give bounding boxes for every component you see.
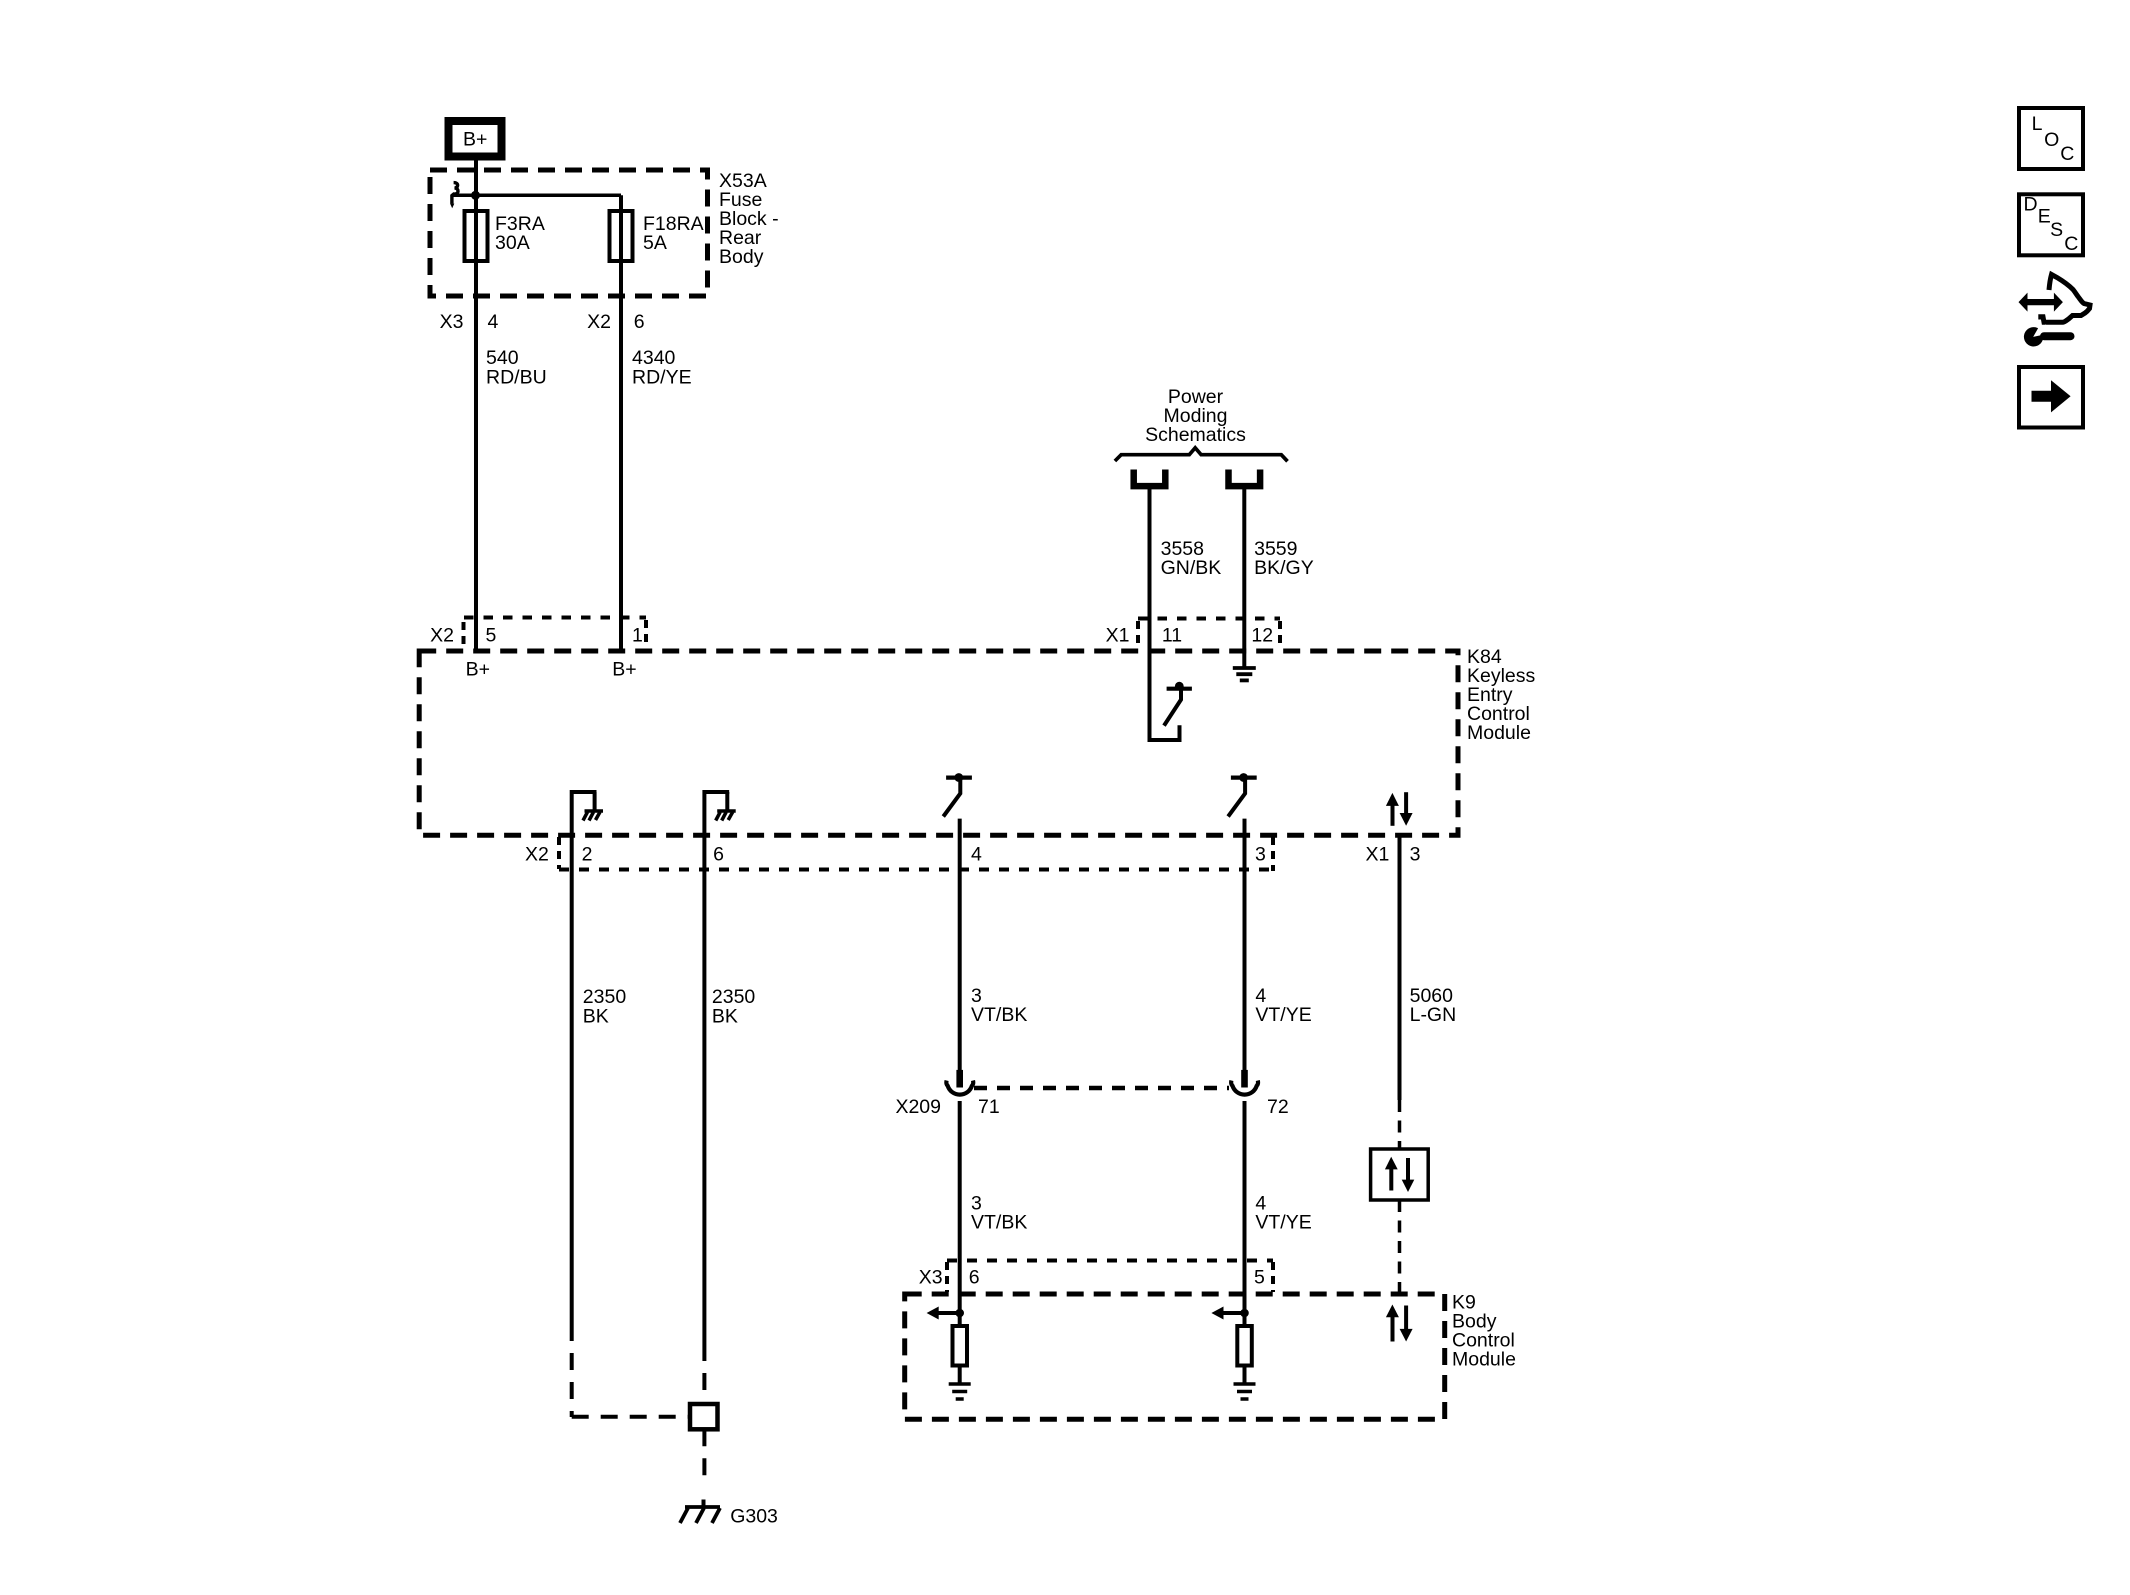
svg-text:5A: 5A [643,232,667,254]
svg-text:72: 72 [1267,1096,1289,1118]
svg-text:71: 71 [978,1096,1000,1118]
svg-text:Module: Module [1452,1349,1516,1371]
svg-text:5: 5 [486,625,497,647]
svg-text:X1: X1 [1365,844,1389,866]
svg-text:30A: 30A [495,232,530,254]
svg-text:X2: X2 [525,844,549,866]
svg-text:RD/YE: RD/YE [632,367,692,389]
svg-text:X3: X3 [919,1267,943,1289]
svg-text:E: E [2038,206,2051,228]
svg-text:3: 3 [1410,844,1421,866]
svg-text:BK: BK [583,1006,609,1028]
svg-text:BK/GY: BK/GY [1254,557,1314,579]
svg-text:BK: BK [712,1006,738,1028]
svg-text:L-GN: L-GN [1410,1004,1457,1026]
svg-text:4: 4 [488,311,499,333]
svg-text:D: D [2024,194,2038,216]
svg-text:Schematics: Schematics [1145,424,1246,446]
svg-text:X2: X2 [430,625,454,647]
svg-text:4: 4 [971,844,982,866]
svg-text:Body: Body [719,246,764,268]
svg-text:X3: X3 [440,311,464,333]
svg-text:G303: G303 [730,1506,778,1528]
svg-text:B+: B+ [466,659,490,681]
svg-text:VT/YE: VT/YE [1255,1004,1311,1026]
svg-text:X209: X209 [895,1096,941,1118]
svg-text:5: 5 [1254,1267,1265,1289]
svg-text:S: S [2050,219,2063,241]
svg-text:6: 6 [969,1267,980,1289]
svg-text:VT/YE: VT/YE [1255,1212,1311,1234]
svg-text:X1: X1 [1106,625,1130,647]
svg-text:3: 3 [1255,844,1266,866]
svg-text:2: 2 [582,844,593,866]
svg-text:GN/BK: GN/BK [1161,557,1222,579]
svg-text:C: C [2060,143,2074,165]
svg-text:X2: X2 [587,311,611,333]
svg-text:VT/BK: VT/BK [971,1212,1027,1234]
svg-text:L: L [2032,113,2043,135]
svg-text:1: 1 [632,625,643,647]
svg-text:B+: B+ [463,129,487,151]
svg-text:6: 6 [713,844,724,866]
svg-text:O: O [2044,129,2059,151]
svg-text:Module: Module [1467,722,1531,744]
svg-text:B+: B+ [612,659,636,681]
svg-text:11: 11 [1162,625,1182,647]
svg-text:RD/BU: RD/BU [486,367,547,389]
svg-text:C: C [2064,233,2078,255]
svg-text:12: 12 [1251,625,1273,647]
svg-text:6: 6 [634,311,645,333]
svg-text:VT/BK: VT/BK [971,1004,1027,1026]
